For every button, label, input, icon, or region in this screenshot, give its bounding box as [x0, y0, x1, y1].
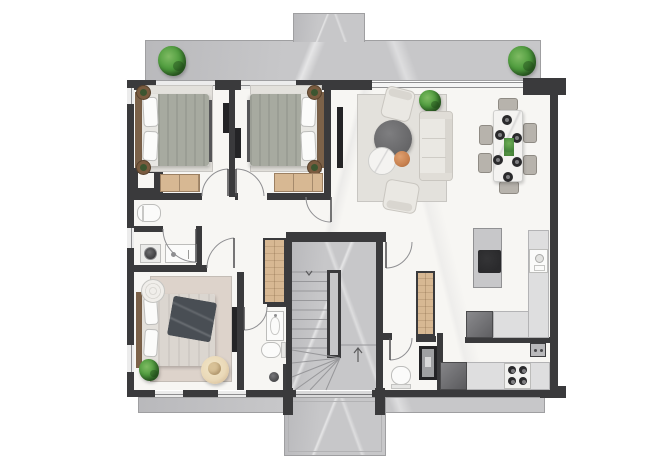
table-centerpiece [504, 138, 514, 156]
sofa-cushion-line-2 [422, 157, 446, 158]
balcony-pier-left [283, 388, 293, 415]
shower-column-detail [425, 357, 431, 367]
wall-left-a [127, 80, 134, 88]
bedroom-3-plant [139, 359, 159, 381]
living-plant [419, 90, 441, 112]
tv-bedroom-2 [235, 128, 241, 158]
wall-under-wardrobe-b [416, 336, 436, 342]
wall-top-2 [215, 80, 241, 90]
window-left-bedroom-3 [127, 345, 134, 372]
armchair-bottom-back [386, 200, 413, 212]
bed-2-headboard [317, 92, 324, 168]
kitchen-counter-corner [493, 311, 529, 338]
burner-3 [508, 377, 516, 385]
sofa-back [445, 112, 452, 180]
ensuite-toilet-tank [281, 342, 286, 358]
wc-toilet-tank [391, 384, 411, 389]
balcony-inner-line [288, 401, 382, 452]
sun-hat-crown [208, 362, 221, 375]
burner-1 [508, 366, 516, 374]
dining-chair-right-2 [523, 155, 537, 175]
dining-chair-left-2 [478, 153, 492, 173]
balcony-pier-right [375, 388, 385, 415]
burner-2 [519, 366, 527, 374]
dresser-bedroom-1 [160, 174, 200, 192]
armchair-bottom [382, 178, 421, 214]
dining-chair-right-1 [523, 123, 537, 143]
window-left-bathroom [127, 228, 134, 248]
wall-bed2-living [324, 88, 331, 197]
vanity-unit [165, 244, 197, 263]
kitchen-counter-right [528, 230, 549, 338]
bed-3-pillow-b [143, 329, 159, 358]
floor-plan-canvas [0, 0, 657, 460]
sun-hat [201, 356, 229, 384]
plate-1 [502, 115, 512, 125]
wall-bathL-top [134, 226, 163, 232]
nightstand-plant-bed1-top [136, 85, 151, 100]
shower-drain [269, 372, 279, 382]
plate-4 [493, 155, 503, 165]
terrace-plant-left [158, 46, 186, 76]
island-cooktop [478, 250, 501, 273]
sofa [419, 111, 453, 181]
built-in-oven [466, 311, 493, 338]
burner-4 [519, 377, 527, 385]
window-left-bedroom-1 [127, 88, 134, 104]
dishwasher [440, 362, 467, 390]
bed-2-pillow-b [300, 131, 317, 162]
wall-top-corner-right [523, 78, 566, 95]
wall-right [550, 90, 558, 397]
nightstand-plant-bed2-top [307, 85, 322, 100]
niche-toilet-tank [142, 206, 144, 222]
dining-chair-left-1 [479, 125, 493, 145]
ensuite-basin-faucet [274, 314, 277, 317]
plate-6 [503, 172, 513, 182]
bedside-round-table [141, 279, 165, 303]
bed-1-pillow-a [142, 97, 159, 128]
window-bottom-bedroom-3 [155, 391, 183, 397]
dining-chair-bottom [499, 181, 519, 194]
coffee-table-marble [368, 147, 396, 175]
bed-1-duvet [158, 94, 209, 166]
socket-dot-1 [534, 349, 537, 352]
orange-pouf [394, 151, 410, 167]
sofa-armrest-top [420, 112, 452, 119]
wall-bottom-4 [372, 390, 550, 397]
gas-hob [504, 363, 531, 389]
terrace-bump-out [293, 13, 365, 42]
vanity-faucet [171, 252, 176, 257]
ensuite-washbasin [266, 311, 284, 341]
wall-bottom-2 [183, 390, 218, 397]
wall-bed3-right [237, 272, 244, 390]
niche-toilet [137, 204, 161, 222]
wall-stairs-top [286, 232, 386, 242]
terrace-top [145, 40, 541, 81]
wall-bed2-bottom [267, 193, 331, 200]
shower-glass-screen [283, 364, 286, 390]
tv-living [337, 107, 343, 168]
terrace-plant-right [508, 46, 536, 76]
window-bottom-bedroom-3b [218, 391, 246, 397]
wall-left-c [127, 248, 134, 345]
wc-toilet-bowl [391, 366, 411, 385]
kitchen-sink-unit [529, 249, 548, 273]
nightstand-plant-bed1-bottom [136, 160, 151, 175]
bed-3-throw-blanket [167, 295, 217, 342]
wall-stairs-right [376, 242, 383, 390]
wardrobe-column-b [416, 271, 435, 336]
bed-2-pillow-a [300, 97, 317, 128]
sofa-armrest-bottom [420, 173, 452, 180]
armchair-top-back [388, 88, 413, 102]
ensuite-toilet [261, 342, 281, 358]
wall-bed3-top [134, 265, 207, 272]
plate-5 [512, 157, 522, 167]
kitchen-sink-basin [534, 265, 545, 271]
tv-bedroom-1 [223, 103, 229, 133]
socket-panel [530, 343, 546, 357]
wall-left-b [127, 104, 134, 228]
socket-dot-2 [540, 349, 543, 352]
round-washbasin [144, 247, 157, 260]
bed-1-foot-bench [209, 100, 212, 162]
wall-stairs-left [286, 242, 292, 390]
vanity-drain-mark [188, 250, 189, 259]
wall-wc-top [383, 333, 392, 340]
ensuite-basin-bowl [270, 317, 280, 335]
glass-door-balcony [296, 391, 372, 397]
sofa-cushion-line-1 [422, 138, 446, 139]
bed-1-pillow-b [142, 131, 159, 162]
dresser-bedroom-2 [274, 173, 323, 192]
bed-2-foot-bench [247, 100, 250, 162]
wall-bed2-bottom-stub [235, 193, 238, 200]
shower-column [419, 346, 437, 380]
wall-bed1-bottom [134, 193, 202, 200]
bed1-niche-inner [138, 173, 154, 188]
bed-2-duvet [250, 94, 301, 166]
stair-stringer [327, 270, 341, 358]
wardrobe-column-a [263, 238, 286, 304]
kitchen-faucet [535, 254, 544, 263]
bed-1-headboard [135, 92, 142, 168]
wall-bottom-1 [127, 390, 155, 397]
